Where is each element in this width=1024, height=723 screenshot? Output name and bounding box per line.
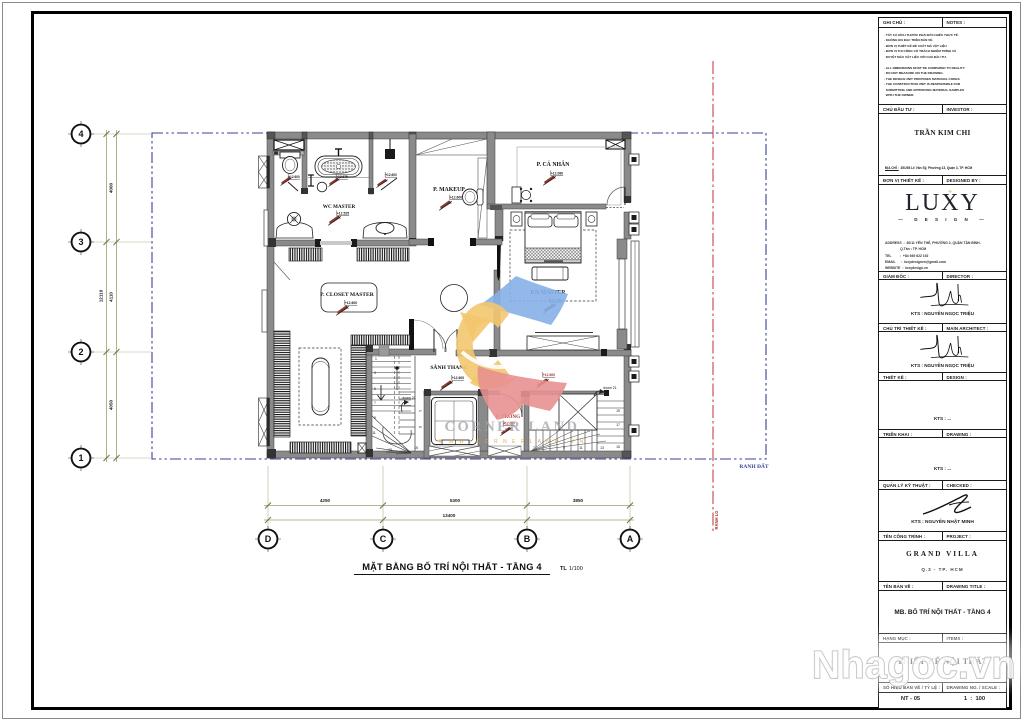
svg-text:Nhagoc.vn: Nhagoc.vn — [812, 644, 1016, 687]
